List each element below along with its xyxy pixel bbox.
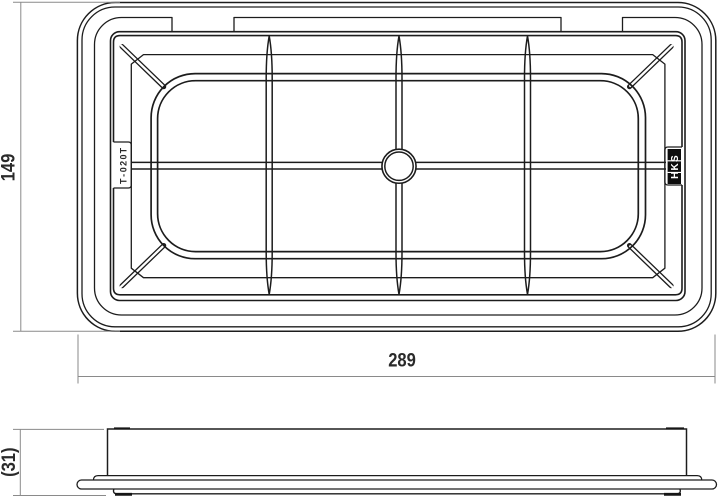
svg-text:2: 2 bbox=[118, 161, 128, 166]
svg-text:0: 0 bbox=[118, 167, 128, 172]
svg-text:(31): (31) bbox=[0, 447, 19, 476]
svg-text:0: 0 bbox=[118, 154, 128, 159]
svg-text:289: 289 bbox=[388, 349, 416, 371]
svg-text:HKS: HKS bbox=[670, 154, 681, 179]
svg-text:T: T bbox=[118, 178, 128, 184]
svg-text:149: 149 bbox=[0, 154, 19, 182]
svg-text:T: T bbox=[118, 147, 128, 153]
svg-text:-: - bbox=[118, 174, 128, 177]
